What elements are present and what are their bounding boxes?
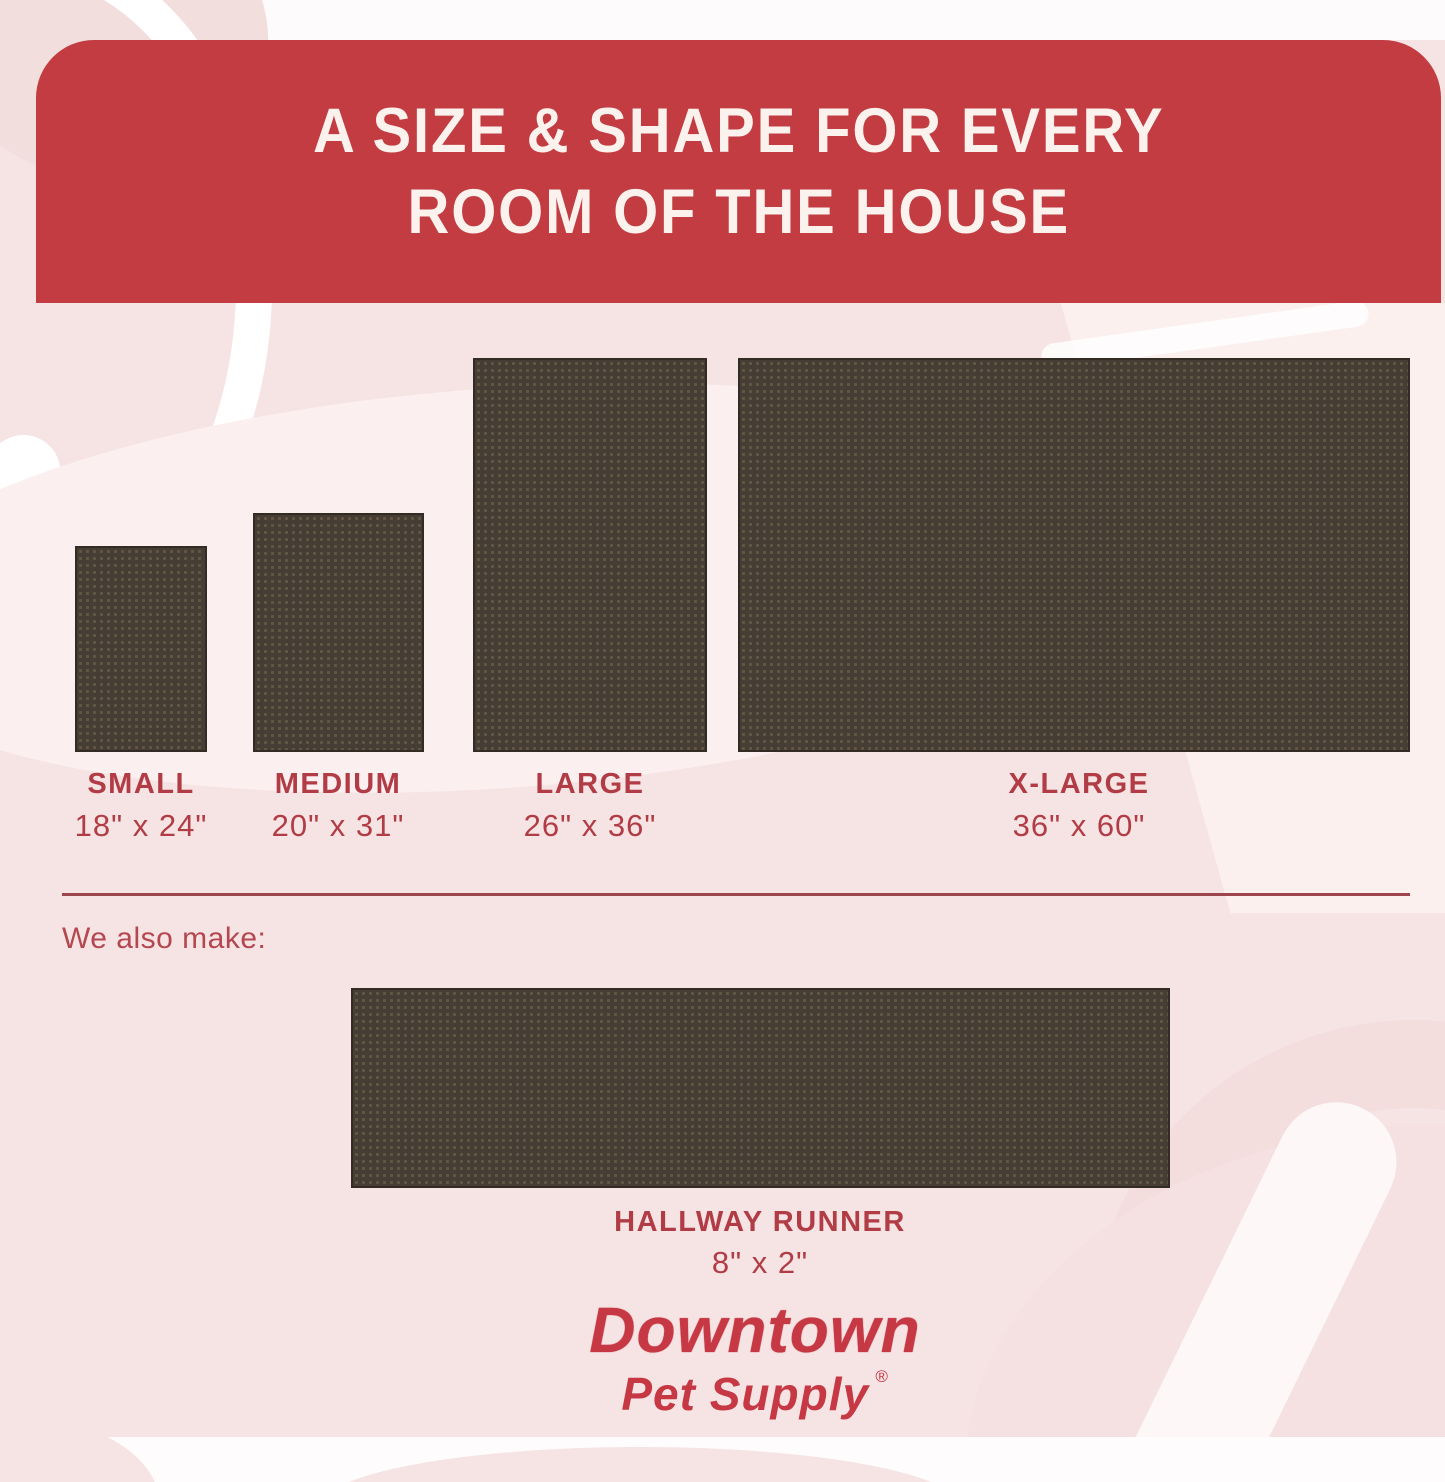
section-divider — [62, 893, 1410, 896]
registered-trademark-symbol: ® — [875, 1367, 889, 1386]
mat-swatch-medium — [253, 513, 424, 752]
size-label-small: SMALL 18" x 24" — [41, 768, 241, 844]
size-name-large: LARGE — [490, 768, 690, 801]
size-dimensions-medium: 20" x 31" — [238, 808, 438, 844]
brand-logo-name: Downtown — [455, 1293, 1055, 1367]
bg-bottom-white-band — [0, 1437, 1445, 1482]
brand-logo: Downtown Pet Supply® — [455, 1293, 1055, 1421]
mat-swatch-hallway-runner — [351, 988, 1170, 1188]
bg-top-band — [0, 0, 1445, 40]
page-title-line2: ROOM OF THE HOUSE — [313, 172, 1164, 253]
mat-swatch-small — [75, 546, 207, 752]
size-label-x-large: X-LARGE 36" x 60" — [969, 768, 1189, 844]
we-also-make-label: We also make: — [62, 922, 266, 956]
size-dimensions-large: 26" x 36" — [490, 808, 690, 844]
bg-bottom-pink-hill — [320, 1447, 960, 1482]
brand-logo-subtitle-text: Pet Supply — [621, 1368, 869, 1420]
size-dimensions-hallway-runner: 8" x 2" — [540, 1245, 980, 1281]
bg-bottom-left-pink — [0, 1399, 171, 1482]
size-label-large: LARGE 26" x 36" — [490, 768, 690, 844]
mat-swatch-x-large — [738, 358, 1410, 752]
size-name-x-large: X-LARGE — [969, 768, 1189, 801]
size-label-medium: MEDIUM 20" x 31" — [238, 768, 438, 844]
infographic-canvas: A SIZE & SHAPE FOR EVERY ROOM OF THE HOU… — [0, 0, 1445, 1482]
header-banner: A SIZE & SHAPE FOR EVERY ROOM OF THE HOU… — [36, 40, 1441, 303]
size-name-hallway-runner: HALLWAY RUNNER — [540, 1206, 980, 1239]
brand-logo-subtitle: Pet Supply® — [455, 1367, 1055, 1421]
size-name-small: SMALL — [41, 768, 241, 801]
mat-swatch-large — [473, 358, 707, 752]
size-name-medium: MEDIUM — [238, 768, 438, 801]
bg-white-ribbon-tail — [0, 425, 71, 676]
size-dimensions-small: 18" x 24" — [41, 808, 241, 844]
page-title-line1: A SIZE & SHAPE FOR EVERY — [313, 91, 1164, 172]
size-label-hallway-runner: HALLWAY RUNNER 8" x 2" — [540, 1206, 980, 1281]
page-title: A SIZE & SHAPE FOR EVERY ROOM OF THE HOU… — [313, 91, 1164, 253]
size-dimensions-x-large: 36" x 60" — [969, 808, 1189, 844]
